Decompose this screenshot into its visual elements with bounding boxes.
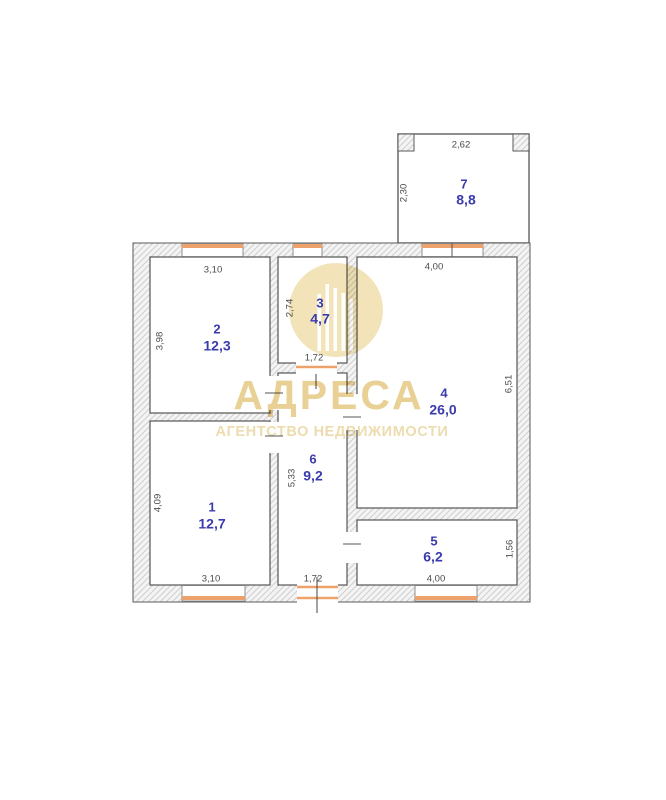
room-4-number: 4 xyxy=(440,385,448,400)
watermark-title: АДРЕСА xyxy=(233,372,424,418)
dim-room7-width: 2,62 xyxy=(452,140,471,151)
dim-room6-height: 5,33 xyxy=(287,469,298,488)
room-1-number: 1 xyxy=(208,499,215,514)
dim-room4-height: 6,51 xyxy=(504,375,515,394)
floor-plan-page: АДРЕСА АГЕНТСТВО НЕДВИЖИМОСТИ 1 12,7 2 1… xyxy=(0,0,666,800)
dim-room3-door: 1,72 xyxy=(305,353,324,364)
room-2-number: 2 xyxy=(213,321,220,336)
window-room5-glass xyxy=(415,596,477,600)
porch-pillar-right xyxy=(513,134,529,151)
dim-room3-height: 2,74 xyxy=(285,299,296,318)
window-room3-glass xyxy=(293,244,322,248)
dim-room7-height: 2,30 xyxy=(399,184,410,203)
room-5-number: 5 xyxy=(430,533,437,548)
dim-room5-width: 4,00 xyxy=(427,574,446,585)
room-6-area: 9,2 xyxy=(303,468,323,484)
room-4-area: 26,0 xyxy=(429,402,456,418)
dim-room1-width: 3,10 xyxy=(202,574,221,585)
door-room6-room5 xyxy=(346,532,358,563)
porch-pillar-left xyxy=(398,134,414,151)
window-room1-glass xyxy=(182,596,245,600)
room-2-area: 12,3 xyxy=(203,338,230,354)
watermark-subtitle: АГЕНТСТВО НЕДВИЖИМОСТИ xyxy=(216,424,449,440)
room-3-area: 4,7 xyxy=(310,311,330,327)
dim-room2-width: 3,10 xyxy=(204,265,223,276)
room-7-area: 8,8 xyxy=(456,192,476,208)
window-room2-glass xyxy=(182,244,243,248)
floor-plan-drawing: АДРЕСА АГЕНТСТВО НЕДВИЖИМОСТИ 1 12,7 2 1… xyxy=(0,0,666,800)
room-7-number: 7 xyxy=(460,176,467,191)
dim-room6-door: 1,72 xyxy=(304,574,323,585)
room-5-area: 6,2 xyxy=(423,549,443,565)
dim-room4-width: 4,00 xyxy=(425,262,444,273)
dim-room1-height: 4,09 xyxy=(153,494,164,513)
dim-room2-height: 3,98 xyxy=(155,332,166,351)
room-1-area: 12,7 xyxy=(198,516,225,532)
dim-room5-height: 1,56 xyxy=(505,540,516,559)
room-6-number: 6 xyxy=(309,451,316,466)
room-3-number: 3 xyxy=(316,295,323,310)
